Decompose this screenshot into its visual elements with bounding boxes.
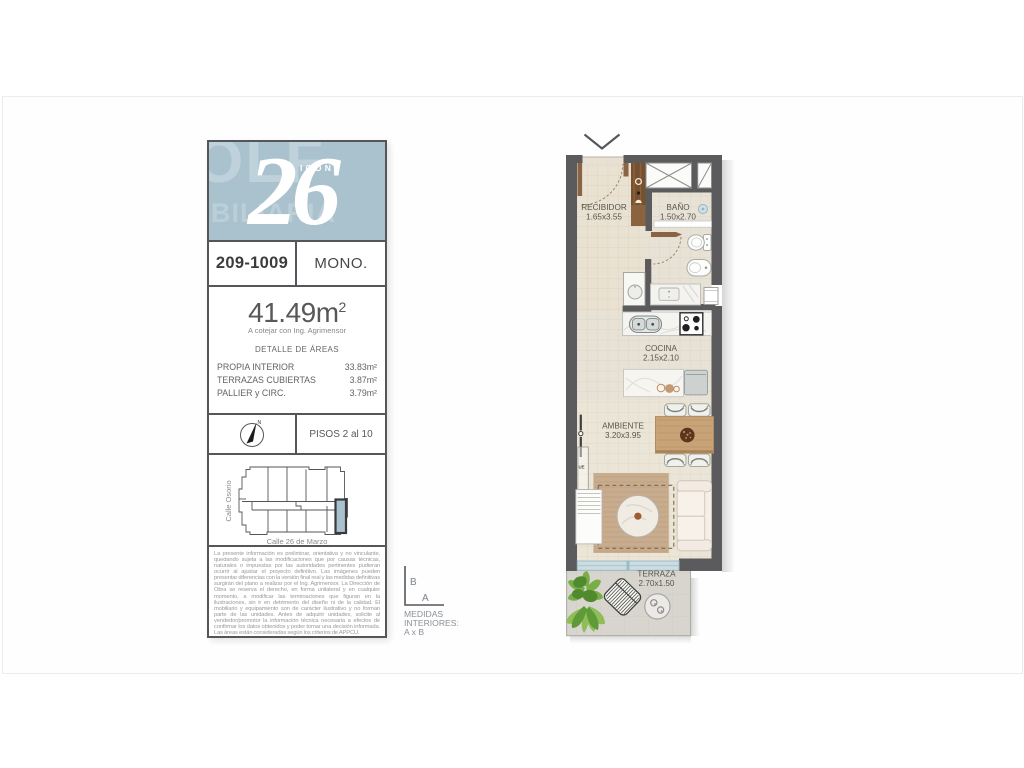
svg-text:COCINA: COCINA [645, 344, 677, 353]
svg-text:2.15x2.10: 2.15x2.10 [643, 354, 679, 363]
svg-text:Calle Osorio: Calle Osorio [224, 480, 233, 521]
svg-text:1.50x2.70: 1.50x2.70 [660, 213, 696, 222]
svg-text:AMBIENTE: AMBIENTE [602, 422, 644, 431]
svg-text:A x B: A x B [404, 627, 424, 637]
svg-text:N: N [258, 420, 262, 426]
svg-text:Calle 26 de Marzo: Calle 26 de Marzo [267, 537, 328, 546]
svg-text:BAÑO: BAÑO [666, 202, 689, 212]
svg-text:1.65x3.55: 1.65x3.55 [586, 213, 622, 222]
svg-text:A: A [422, 593, 429, 604]
svg-text:RECIBIDOR: RECIBIDOR [581, 203, 627, 212]
svg-text:B: B [410, 577, 417, 588]
svg-text:TERRAZA: TERRAZA [637, 570, 676, 579]
svg-text:2.70x1.50: 2.70x1.50 [639, 579, 675, 588]
svg-text:3.20x3.95: 3.20x3.95 [605, 431, 641, 440]
svg-text:UE: UE [579, 465, 585, 470]
